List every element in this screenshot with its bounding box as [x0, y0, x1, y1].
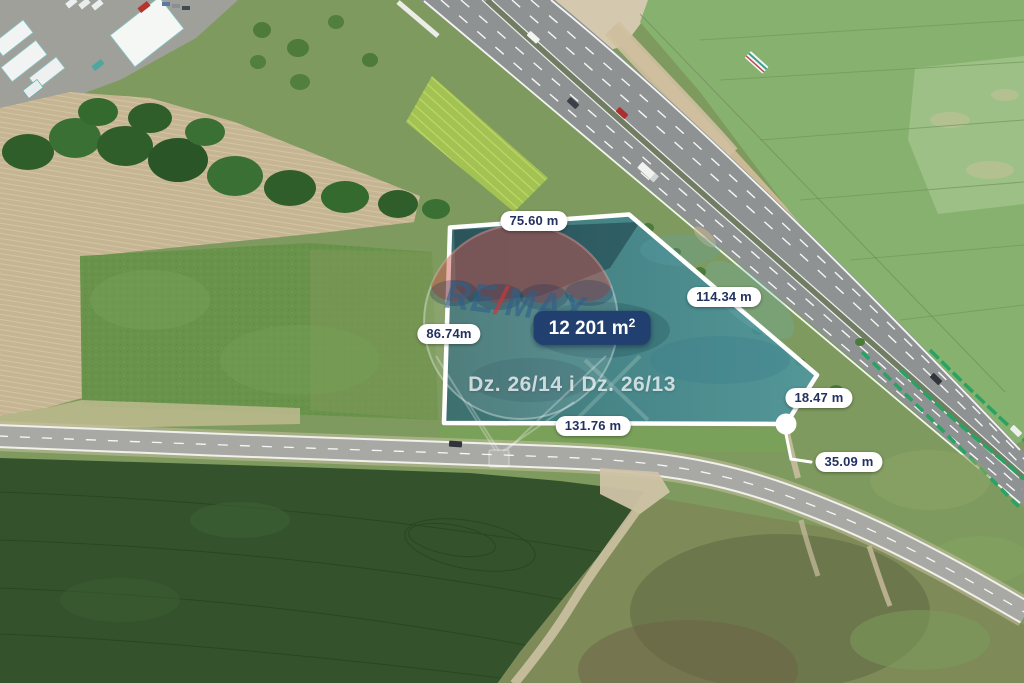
brand-re: RE: [442, 272, 498, 322]
balloon-basket: [489, 450, 509, 467]
corner-marker-dot: [776, 414, 797, 435]
car-on-road: [449, 441, 462, 448]
aerial-listing-image: RE/MAX 75.60 m 86.74m 114.34 m 18.47 m 1…: [0, 0, 1024, 683]
aerial-scene: RE/MAX: [0, 0, 1024, 683]
